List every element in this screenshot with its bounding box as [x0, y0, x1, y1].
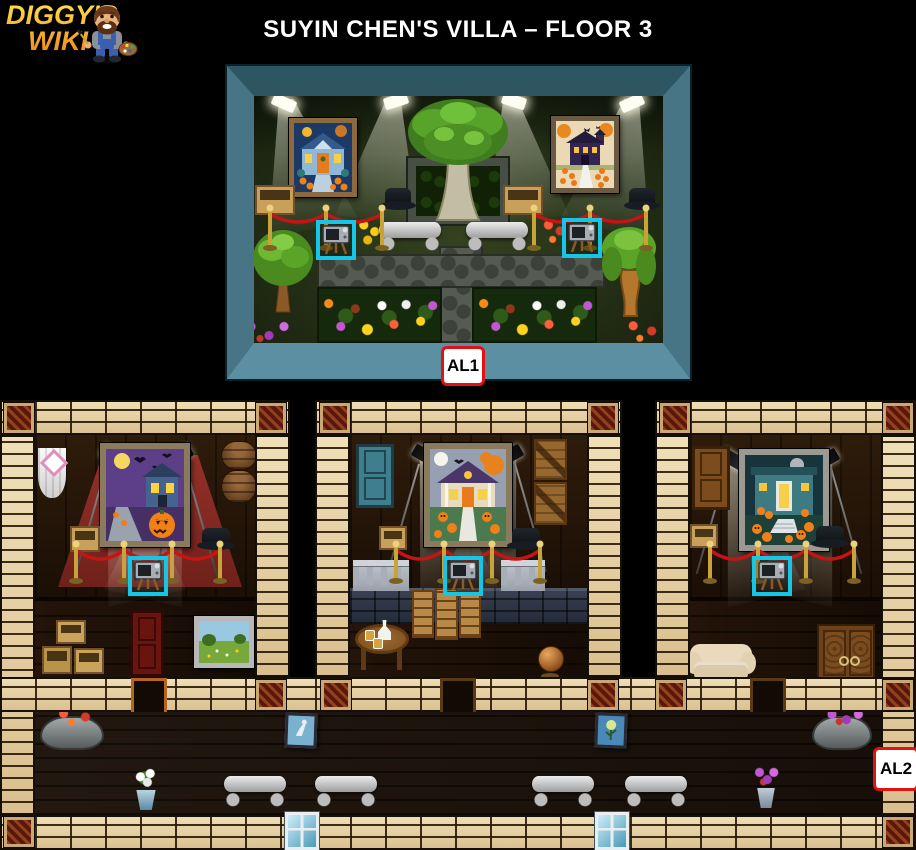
wall-middle-room-left	[315, 435, 350, 677]
cabinet-handle-icon	[850, 656, 860, 666]
cabinet-door	[849, 630, 872, 676]
globe-sphere	[538, 646, 564, 672]
leaning-artwork	[594, 712, 627, 748]
painting-image	[430, 449, 506, 541]
artwork-image	[598, 716, 625, 746]
gold-crate	[56, 620, 86, 644]
tv-on-easel-icon	[566, 222, 598, 254]
ornate-corner-tile	[4, 817, 34, 847]
ornate-corner-tile	[883, 817, 913, 847]
page-title: SUYIN CHEN'S VILLA – FLOOR 3	[0, 16, 916, 44]
marker-al2-label: AL2	[880, 759, 912, 779]
drink-glass	[373, 638, 383, 649]
ornate-corner-tile	[4, 403, 34, 433]
artwork-image	[288, 716, 315, 746]
ornate-corner-tile	[883, 403, 913, 433]
ornate-corner-tile	[588, 403, 618, 433]
ornate-corner-tile	[256, 403, 286, 433]
tv-on-easel-icon	[756, 560, 788, 592]
tv-easel-highlight[interactable]	[128, 556, 168, 596]
left-room-doorway	[131, 678, 167, 712]
wall-left-room-right	[255, 435, 290, 677]
wall-middle-room-right	[587, 435, 622, 677]
marker-al1[interactable]: AL1	[441, 346, 485, 386]
stone-planter-red-flowers	[40, 716, 104, 750]
red-door	[130, 610, 164, 677]
middle-room-doorway	[440, 678, 476, 712]
corridor-window	[595, 812, 629, 850]
halloween-purple-night-painting	[100, 443, 190, 547]
teal-door	[356, 444, 394, 508]
cabinet-handle-icon	[839, 656, 849, 666]
copper-globe	[535, 644, 565, 680]
fence-panel	[412, 590, 434, 638]
marker-al2[interactable]: AL2	[873, 747, 916, 791]
landscape-painting-on-easel	[194, 616, 254, 668]
tv-easel-highlight[interactable]	[316, 220, 356, 260]
wall-right-room-left	[655, 435, 690, 677]
tv-easel-highlight[interactable]	[562, 218, 602, 258]
barrel	[221, 441, 257, 470]
ornate-corner-tile	[320, 403, 350, 433]
white-flower-pot	[130, 768, 162, 812]
stone-bench	[315, 776, 377, 808]
right-room-doorway	[750, 678, 786, 712]
map-canvas: DIGGY'S WIKI	[0, 0, 916, 850]
cabinet-door	[823, 630, 846, 676]
painting-image	[199, 621, 249, 663]
marker-al1-label: AL1	[447, 356, 479, 376]
brown-door	[692, 446, 730, 510]
wall-corridor-bottom	[0, 815, 916, 850]
corridor-window	[285, 812, 319, 850]
stone-bench	[532, 776, 594, 808]
ornate-corner-tile	[256, 680, 286, 710]
flower-pot	[755, 788, 777, 808]
flower-pot	[134, 790, 158, 810]
pink-flower-pot	[751, 764, 781, 810]
white-flowers	[132, 768, 160, 790]
tv-on-easel-icon	[132, 560, 164, 592]
wall-left-edge	[0, 435, 35, 815]
wall-right-room-top	[655, 400, 916, 435]
tv-on-easel-icon	[447, 560, 479, 592]
ornate-corner-tile	[883, 680, 913, 710]
tv-easel-highlight[interactable]	[443, 556, 483, 596]
ornate-corner-tile	[588, 680, 618, 710]
pink-flowers	[753, 764, 779, 788]
barrel	[221, 470, 257, 503]
ornate-corner-tile	[660, 403, 690, 433]
gold-crate	[42, 646, 72, 674]
ornate-corner-tile	[321, 680, 351, 710]
painting-image	[106, 449, 184, 541]
wall-left-room-top	[0, 400, 290, 435]
tv-easel-highlight[interactable]	[752, 556, 792, 596]
gold-crate-stack	[42, 620, 106, 678]
fence-panel	[459, 590, 481, 638]
wooden-crate	[534, 439, 567, 480]
halloween-porch-house-painting	[424, 443, 512, 547]
wooden-crate	[534, 482, 567, 525]
painting-image	[745, 455, 823, 545]
decanter	[378, 620, 391, 640]
wooden-cabinet	[817, 624, 875, 680]
gold-crate	[74, 648, 104, 674]
stone-bench	[625, 776, 687, 808]
wall-middle-room-top	[315, 400, 622, 435]
leaning-artwork	[284, 712, 317, 748]
stone-bench	[224, 776, 286, 808]
stone-planter-purple-flowers	[812, 716, 872, 750]
ornate-corner-tile	[656, 680, 686, 710]
drinks-table	[355, 620, 409, 674]
tv-on-easel-icon	[320, 224, 352, 256]
